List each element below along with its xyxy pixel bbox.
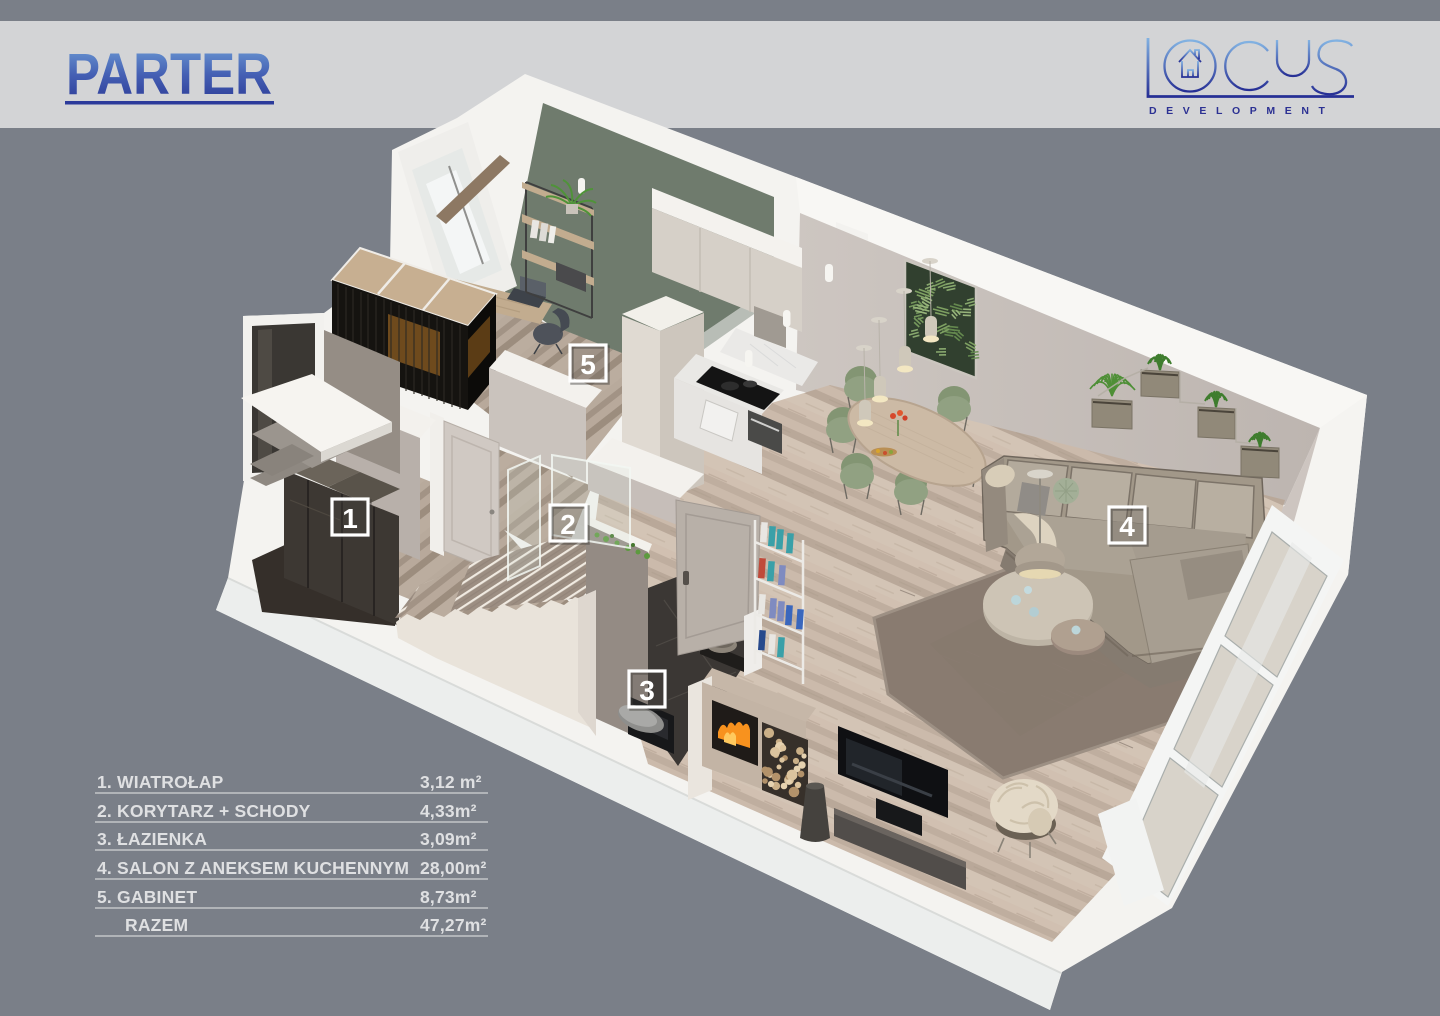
svg-text:PARTER: PARTER	[66, 42, 272, 107]
svg-text:2. KORYTARZ + SCHODY: 2. KORYTARZ + SCHODY	[97, 801, 311, 821]
svg-text:4: 4	[1119, 511, 1135, 542]
svg-text:4. SALON Z ANEKSEM KUCHENNYM: 4. SALON Z ANEKSEM KUCHENNYM	[97, 858, 409, 878]
svg-text:28,00m²: 28,00m²	[420, 858, 487, 878]
svg-text:2: 2	[560, 509, 576, 540]
svg-text:8,73m²: 8,73m²	[420, 887, 477, 907]
svg-text:3: 3	[639, 675, 655, 706]
svg-text:3. ŁAZIENKA: 3. ŁAZIENKA	[97, 829, 207, 849]
svg-text:1: 1	[342, 503, 358, 534]
svg-text:RAZEM: RAZEM	[125, 915, 188, 935]
svg-text:47,27m²: 47,27m²	[420, 915, 487, 935]
svg-text:3,09m²: 3,09m²	[420, 829, 477, 849]
svg-text:4,33m²: 4,33m²	[420, 801, 477, 821]
svg-text:DEVELOPMENT: DEVELOPMENT	[1149, 105, 1335, 117]
svg-text:1. WIATROŁAP: 1. WIATROŁAP	[97, 772, 224, 792]
svg-text:3,12 m²: 3,12 m²	[420, 772, 482, 792]
svg-text:5. GABINET: 5. GABINET	[97, 887, 197, 907]
svg-text:5: 5	[580, 349, 596, 380]
